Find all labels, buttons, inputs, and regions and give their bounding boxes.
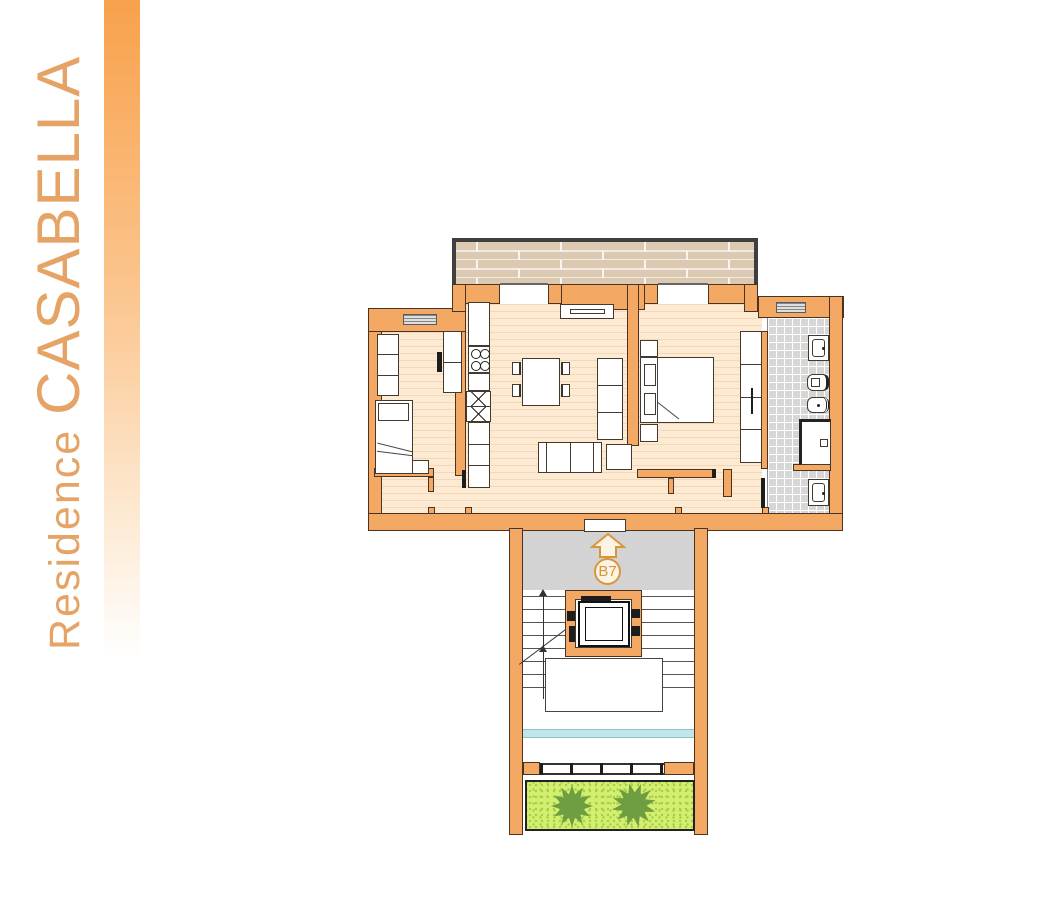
tree-icon [606, 782, 662, 829]
bed-double [640, 357, 714, 423]
garden-bed [525, 780, 695, 831]
radiator-line [570, 309, 605, 314]
wall-stairwell-right [694, 528, 708, 835]
railing-post [570, 763, 573, 775]
kitchen-counter-top [468, 302, 490, 346]
unit-badge: B7 [594, 558, 621, 585]
dining-chair [561, 362, 570, 375]
railing-post [540, 763, 543, 775]
shower-drain [820, 439, 828, 447]
wall-stairwell-left [509, 528, 523, 835]
brand-title: Residence CASABELLA [24, 0, 110, 650]
nightstand-bottom [640, 424, 658, 442]
wardrobe-bedroom-left [377, 334, 399, 396]
sofa-cushion [547, 445, 570, 472]
dining-chair [512, 384, 521, 397]
stairwell-void [545, 658, 663, 712]
wall-terrace-pier-right-bump [744, 284, 758, 312]
kitchen-sink [466, 391, 491, 422]
nightstand-top [640, 340, 658, 357]
bathroom-sink-lower [808, 479, 829, 506]
terrace-deck-planks [456, 242, 754, 284]
bidet [807, 397, 829, 413]
railing-wall-stub-left [523, 762, 540, 775]
chair-mark-bedroom-left [437, 352, 442, 372]
kitchen-door-jamb [462, 470, 466, 488]
elevator-mechanism [581, 596, 611, 601]
terrace-door-threshold-left [500, 283, 548, 285]
brand-residence-label: Residence [41, 415, 89, 650]
wall-hallway-stub [723, 469, 732, 497]
wall-exterior-right [829, 296, 843, 531]
window-bedroom-left [403, 314, 437, 325]
railing-post [660, 763, 663, 775]
shower [799, 419, 831, 465]
pillow [644, 393, 656, 415]
entry-door-threshold [584, 519, 626, 532]
kitchen-counter-mid [468, 373, 490, 391]
blanket-fold-line [377, 451, 413, 456]
elevator-mechanism [567, 611, 575, 621]
sink-drain [822, 492, 825, 495]
railing-post [630, 763, 633, 775]
wardrobe-handle [751, 388, 753, 414]
bathroom-sink [808, 335, 829, 361]
railing-wall-stub-right [664, 762, 694, 775]
sofa-cushion [570, 443, 594, 472]
radiator-sideboard [560, 304, 614, 319]
toilet-bowl [811, 378, 820, 387]
brand-name-label: CASABELLA [25, 56, 92, 415]
nightstand-bedroom-left [412, 460, 429, 474]
wall-bedroom-right-bottom [637, 469, 713, 478]
elevator-mechanism [631, 626, 640, 636]
wall-living-bedroom-divider [627, 284, 639, 446]
terrace-deck [452, 238, 758, 284]
wall-terrace-pier-left-bump [452, 284, 466, 312]
wall-bathroom-partition [793, 464, 831, 471]
stair-direction-arrowhead [539, 589, 547, 596]
kitchen-stove [468, 346, 490, 373]
wall-joint-notch [465, 507, 472, 514]
bidet-drain [817, 404, 820, 407]
window-bathroom [776, 302, 806, 313]
wall-door-jamb-stub [668, 478, 674, 494]
bathroom-door-leaf [761, 478, 765, 508]
kitchen-cabinets-bottom [468, 422, 490, 488]
stove-burner [480, 361, 490, 371]
elevator-mechanism [569, 626, 575, 642]
elevator-mechanism [631, 609, 640, 618]
storage-column-living [597, 358, 623, 440]
toilet [807, 374, 829, 391]
wall-joint-notch [428, 507, 435, 514]
dining-chair [512, 362, 521, 375]
dining-table [522, 358, 560, 406]
unit-label: B7 [598, 563, 616, 580]
floorplan-page: Residence CASABELLA [0, 0, 1047, 899]
railing-post [600, 763, 603, 775]
elevator-car-interior [585, 607, 623, 641]
bedroom-door-jamb [712, 469, 716, 478]
pillow [378, 403, 409, 421]
wall-joint-notch [675, 507, 682, 514]
sofa-armrest [593, 443, 601, 472]
headboard-line [657, 358, 658, 422]
wall-door-jamb-stub [428, 477, 434, 492]
sofa-armrest [539, 443, 547, 472]
stove-burner [480, 349, 490, 359]
terrace-door-threshold-right [658, 283, 708, 285]
wall-bedroom-bathroom-divider [761, 331, 768, 469]
pillow [644, 364, 656, 386]
garden-trees [527, 782, 693, 829]
bed-single [375, 400, 413, 474]
blanket-fold-line [657, 402, 679, 419]
side-table [606, 444, 632, 470]
cabinet-bedroom-left [443, 331, 462, 393]
up-arrow-icon [590, 533, 626, 558]
canopy-strip [523, 729, 694, 738]
sofa [538, 442, 602, 473]
dining-chair [561, 384, 570, 397]
tree-icon [551, 785, 593, 827]
sink-drain [822, 347, 825, 350]
wall-joint-notch [762, 507, 769, 514]
